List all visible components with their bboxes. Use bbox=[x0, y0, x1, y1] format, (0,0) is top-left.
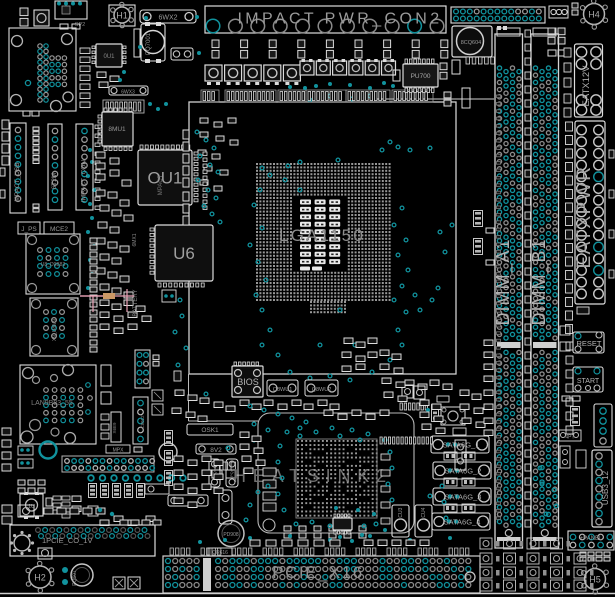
svg-text:U6: U6 bbox=[173, 244, 195, 263]
svg-text:4PT: 4PT bbox=[565, 435, 574, 441]
svg-text:MCE2: MCE2 bbox=[50, 226, 68, 233]
svg-text:EATX12V: EATX12V bbox=[581, 65, 592, 107]
svg-text:PCIE_X16: PCIE_X16 bbox=[272, 563, 363, 582]
svg-text:U8_D9B83: U8_D9B83 bbox=[41, 262, 66, 268]
svg-text:LGA1150: LGA1150 bbox=[279, 226, 365, 245]
svg-text:8MU1: 8MU1 bbox=[108, 126, 126, 133]
svg-text:X9_U8M9: X9_U8M9 bbox=[52, 319, 58, 341]
svg-text:QR616: QR616 bbox=[212, 550, 228, 556]
svg-text:SATA6G_4: SATA6G_4 bbox=[444, 518, 481, 527]
svg-text:8V2: 8V2 bbox=[210, 447, 222, 454]
svg-text:C8912: C8912 bbox=[140, 415, 145, 429]
svg-text:EATXPWR: EATXPWR bbox=[574, 165, 595, 268]
svg-text:MPACT_USB: MPACT_USB bbox=[14, 162, 21, 201]
svg-text:USB3_12: USB3_12 bbox=[601, 470, 610, 505]
svg-text:PQ9: PQ9 bbox=[229, 468, 234, 477]
svg-text:H2: H2 bbox=[34, 573, 46, 583]
svg-text:LAN9B83_55: LAN9B83_55 bbox=[31, 400, 73, 407]
svg-text:IMPACT PWR_CON2: IMPACT PWR_CON2 bbox=[237, 11, 442, 28]
svg-text:1CU3: 1CU3 bbox=[398, 507, 404, 520]
svg-text:0U1: 0U1 bbox=[103, 54, 115, 60]
svg-text:PQ607: PQ607 bbox=[72, 570, 78, 586]
svg-text:PQ7001: PQ7001 bbox=[146, 32, 152, 55]
svg-text:PD908: PD908 bbox=[223, 532, 239, 538]
svg-text:MPX: MPX bbox=[113, 448, 125, 454]
svg-text:SATA6G_1: SATA6G_1 bbox=[443, 441, 480, 450]
svg-text:START: START bbox=[577, 378, 600, 385]
svg-text:OU1: OU1 bbox=[148, 168, 183, 187]
svg-text:6WX3: 6WX3 bbox=[121, 90, 135, 96]
svg-text:8CQ604: 8CQ604 bbox=[461, 40, 482, 46]
svg-text:OSK1: OSK1 bbox=[201, 427, 219, 434]
svg-text:H1: H1 bbox=[116, 11, 128, 21]
svg-text:X6E9: X6E9 bbox=[112, 422, 117, 434]
svg-text:PU700: PU700 bbox=[411, 73, 431, 80]
svg-text:BATTERY: BATTERY bbox=[133, 289, 139, 316]
svg-text:BIOS: BIOS bbox=[237, 377, 259, 387]
svg-text:RESET: RESET bbox=[576, 339, 601, 348]
svg-text:6T2M: 6T2M bbox=[51, 173, 58, 190]
svg-text:1PCIE_CO_1V: 1PCIE_CO_1V bbox=[42, 536, 92, 545]
svg-text:H4: H4 bbox=[588, 10, 600, 20]
svg-text:Q8WU1: Q8WU1 bbox=[273, 387, 293, 393]
svg-text:+PANEL: +PANEL bbox=[580, 536, 603, 542]
svg-text:J_PS: J_PS bbox=[21, 226, 37, 233]
svg-text:IMPACT_CON: IMPACT_CON bbox=[81, 160, 88, 202]
svg-text:SATA6G_3: SATA6G_3 bbox=[445, 493, 482, 502]
svg-text:DIMM_B1: DIMM_B1 bbox=[529, 238, 550, 325]
svg-text:6MX1: 6MX1 bbox=[132, 233, 138, 246]
svg-text:1CU4: 1CU4 bbox=[421, 507, 427, 520]
svg-text:MPACT: MPACT bbox=[158, 174, 164, 195]
svg-text:Q8WU2: Q8WU2 bbox=[312, 387, 332, 393]
svg-text:SATA6G_2: SATA6G_2 bbox=[445, 467, 482, 476]
svg-text:6WX2: 6WX2 bbox=[158, 15, 177, 22]
